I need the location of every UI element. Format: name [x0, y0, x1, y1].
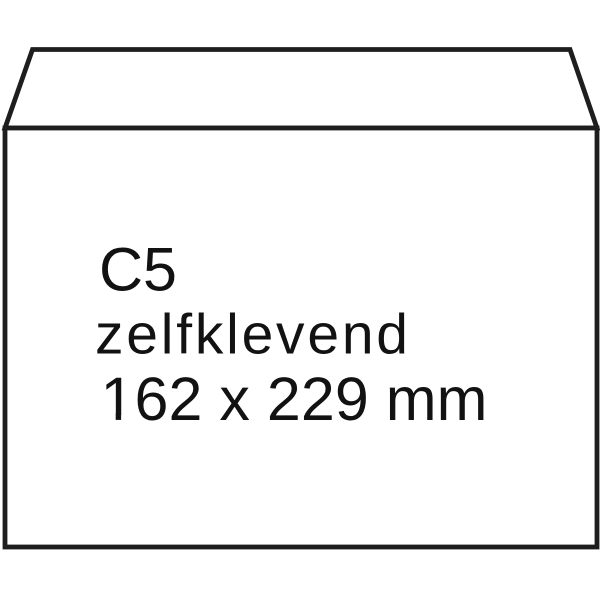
- svg-text:zelfklevend: zelfklevend: [95, 303, 408, 367]
- svg-text:C5: C5: [99, 236, 177, 304]
- svg-text:162 x 229 mm: 162 x 229 mm: [101, 365, 488, 433]
